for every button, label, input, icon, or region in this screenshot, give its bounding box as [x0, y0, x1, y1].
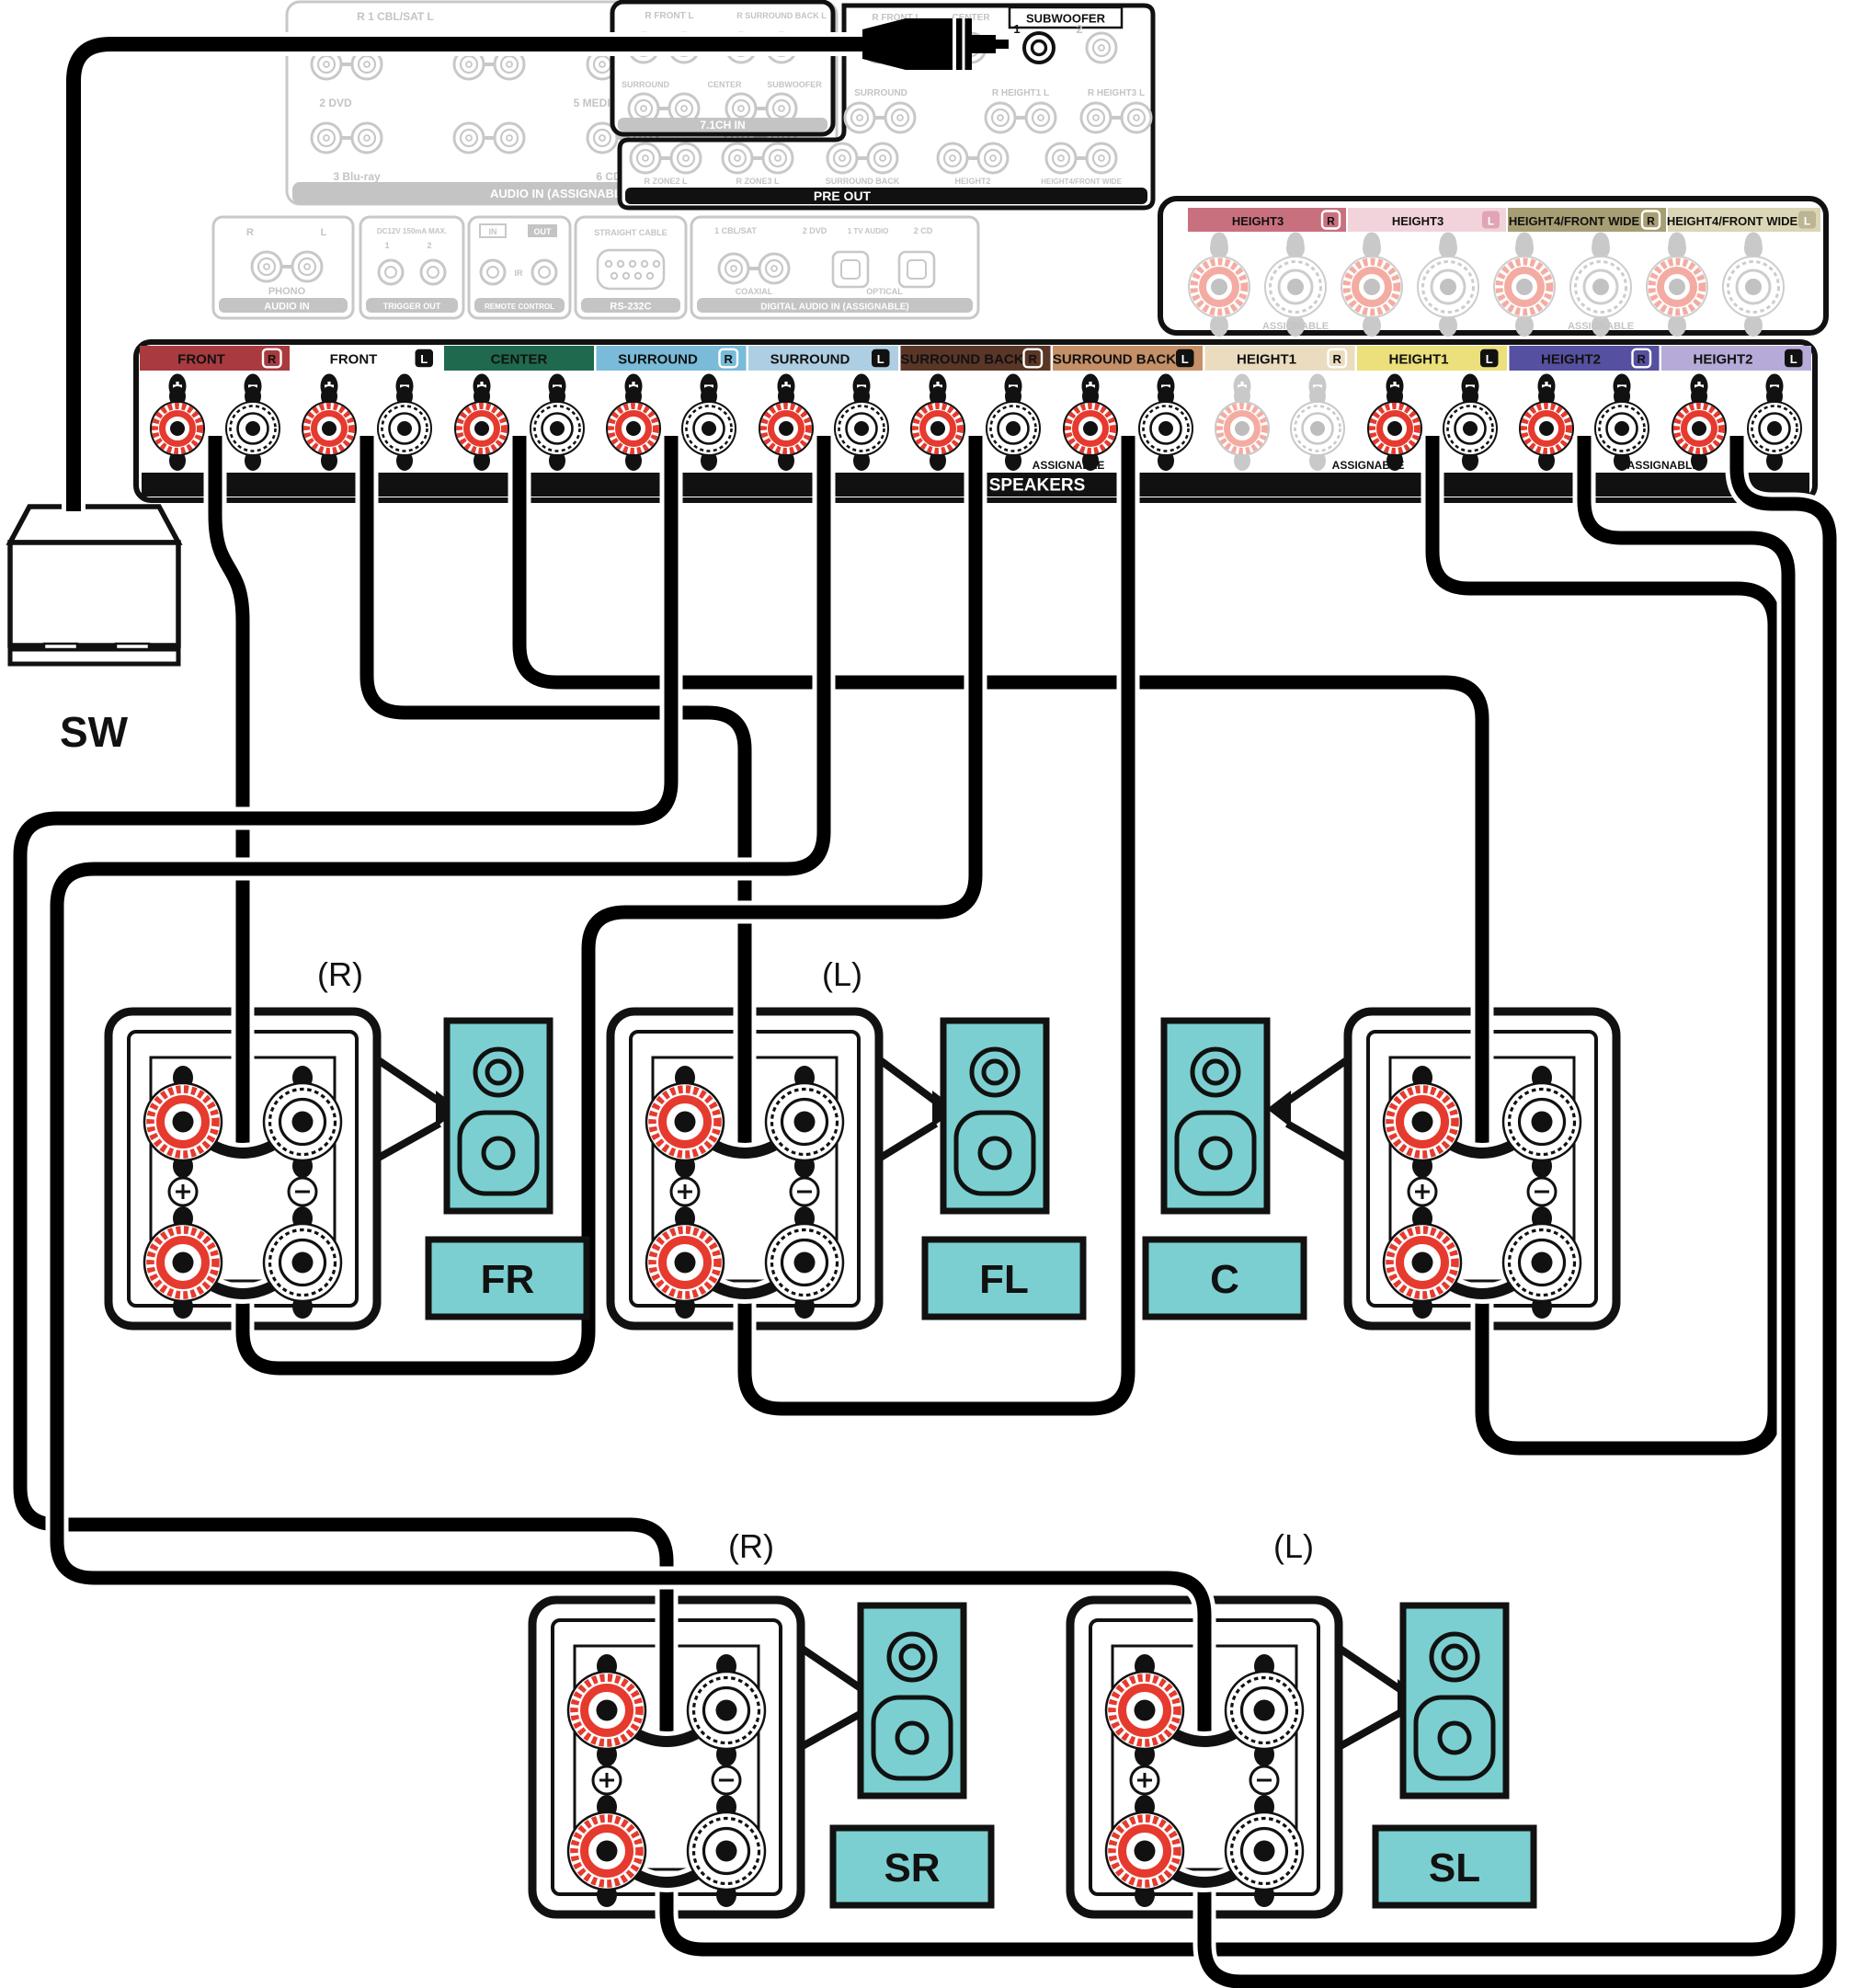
svg-text:L: L: [877, 352, 884, 366]
channel-label-height2-r: HEIGHT2 R: [1510, 346, 1660, 371]
svg-text:L: L: [420, 352, 428, 366]
input-label: 3 Blu-ray: [333, 170, 381, 183]
channel-label-height1-l: HEIGHT1 L: [1357, 346, 1507, 371]
input-label: 2 DVD: [319, 97, 352, 109]
channel-label-surround-l: SURROUND L: [748, 346, 898, 371]
channel-label-surround-back-r: SURROUND BACK R: [900, 346, 1050, 371]
audio-group-label: R 1 CBL/SAT L: [357, 10, 434, 23]
height34-header: HEIGHT4/FRONT WIDE L: [1667, 208, 1820, 232]
svg-text:L: L: [1486, 352, 1493, 366]
assignable-label: ASSIGNABLE: [1332, 459, 1405, 472]
remote-ir: IR: [515, 268, 524, 278]
speakers-bar-label: SPEAKERS: [989, 476, 1086, 496]
svg-text:HEIGHT2: HEIGHT2: [1693, 352, 1752, 368]
svg-text:L: L: [1790, 352, 1797, 366]
channel-label-front-l: FRONT L: [292, 346, 442, 371]
height34-header: HEIGHT3 R: [1188, 208, 1346, 232]
ch71-label: SURROUND: [622, 80, 670, 89]
ch71-label: CENTER: [707, 80, 742, 89]
c-speaker-icon: [1164, 1021, 1267, 1211]
rs232-top: STRAIGHT CABLE: [594, 228, 668, 237]
fr-label: FR: [481, 1257, 535, 1302]
fl-label: FL: [979, 1257, 1029, 1302]
trigger-bar: TRIGGER OUT: [383, 302, 441, 311]
phono-panel: R L PHONO AUDIO IN: [213, 217, 353, 318]
c-label: C: [1210, 1257, 1239, 1302]
svg-text:CENTER: CENTER: [491, 352, 548, 368]
ch71-bar-label: 7.1CH IN: [700, 119, 745, 131]
pre-out-bar-label: PRE OUT: [814, 189, 872, 203]
ch71-group-label: R FRONT L: [645, 11, 693, 21]
rs232-bar: RS-232C: [610, 302, 651, 313]
callout: [801, 1648, 863, 1747]
channel-label-center: CENTER: [444, 346, 594, 371]
fr-side-label: (R): [317, 955, 363, 993]
assignable-label: ASSIGNABLE: [1033, 459, 1105, 472]
subwoofer-label: SUBWOOFER: [1026, 12, 1106, 26]
svg-text:R: R: [1333, 352, 1342, 366]
sl-label: SL: [1429, 1845, 1480, 1891]
preout-label: R HEIGHT3 L: [1088, 88, 1145, 98]
optical-label: OPTICAL: [866, 287, 903, 296]
channel-label-height1-r: HEIGHT1 R: [1205, 346, 1355, 371]
trigger-1: 1: [384, 241, 389, 250]
assignable-label: ASSIGNABLE: [1262, 321, 1329, 332]
io-panel-row: R L PHONO AUDIO IN DC12V 150mA MAX. 1 2 …: [213, 217, 978, 318]
svg-text:R: R: [1637, 352, 1647, 366]
svg-text:HEIGHT4/FRONT WIDE: HEIGHT4/FRONT WIDE: [1509, 214, 1640, 228]
svg-text:L: L: [1804, 215, 1810, 228]
subwoofer-jack1-number: 1: [1013, 22, 1020, 36]
assignable-label: ASSIGNABLE: [1568, 321, 1634, 332]
audio-bar-label: AUDIO IN (ASSIGNABLE): [490, 187, 633, 200]
svg-text:SURROUND BACK: SURROUND BACK: [1053, 352, 1176, 368]
sr-side-label: (R): [728, 1527, 774, 1565]
height3-height4-terminals: HEIGHT3 R HEIGHT3 L HEIGHT4/FRONT WIDE R…: [1160, 199, 1826, 337]
sr-speaker-icon: [861, 1605, 964, 1796]
svg-text:HEIGHT1: HEIGHT1: [1237, 352, 1296, 368]
height34-header: HEIGHT3 L: [1348, 208, 1506, 232]
remote-bar: REMOTE CONTROL: [485, 303, 554, 311]
digital-label: 2 CD: [914, 226, 933, 235]
fl-side-label: (L): [822, 955, 862, 993]
channel-label-front-r: FRONT R: [140, 346, 290, 371]
phono-bar: AUDIO IN: [264, 302, 310, 313]
channel-label-height2-l: HEIGHT2 L: [1661, 346, 1811, 371]
receiver-rear-panel: R 1 CBL/SAT L R 4 GAME L 2 DVD 5 MEDIA P…: [136, 2, 1826, 500]
digital-label: 2 DVD: [803, 226, 827, 235]
svg-text:HEIGHT3: HEIGHT3: [1232, 214, 1284, 228]
svg-text:FRONT: FRONT: [330, 352, 378, 368]
fl-speaker-icon: [943, 1021, 1046, 1211]
height34-header: HEIGHT4/FRONT WIDE R: [1508, 208, 1666, 232]
svg-text:L: L: [1181, 352, 1189, 366]
sl-speaker-icon: [1403, 1605, 1506, 1796]
svg-text:L: L: [1488, 215, 1494, 228]
svg-text:SURROUND: SURROUND: [770, 352, 850, 368]
preout-label: R ZONE2 L: [644, 177, 688, 186]
svg-text:HEIGHT3: HEIGHT3: [1392, 214, 1443, 228]
ch71-label: SUBWOOFER: [767, 80, 822, 89]
subwoofer-label: SW: [60, 708, 129, 756]
phono-r: R: [246, 227, 254, 238]
rs232c-panel: STRAIGHT CABLE RS-232C: [576, 217, 686, 318]
channel-label-surround-r: SURROUND R: [597, 346, 747, 371]
preout-label: SURROUND: [854, 88, 907, 98]
svg-text:HEIGHT4/FRONT WIDE: HEIGHT4/FRONT WIDE: [1667, 214, 1798, 228]
71ch-in-panel: R FRONT L R SURROUND BACK L SURROUND CEN…: [612, 2, 833, 134]
callout: [377, 1059, 439, 1159]
coaxial-label: COAXIAL: [736, 287, 773, 296]
svg-text:R: R: [1029, 352, 1038, 366]
callout: [1339, 1648, 1401, 1747]
remote-in: IN: [489, 227, 497, 236]
svg-text:R: R: [1327, 215, 1335, 228]
sr-label: SR: [884, 1845, 940, 1891]
svg-text:FRONT: FRONT: [177, 352, 225, 368]
speaker-c: C: [1146, 1021, 1348, 1317]
preout-label: SURROUND BACK: [826, 177, 900, 186]
digital-bar: DIGITAL AUDIO IN (ASSIGNABLE): [760, 303, 908, 313]
callout-tip: [1267, 1091, 1291, 1127]
sl-side-label: (L): [1273, 1527, 1314, 1565]
digital-label: 1 TV AUDIO: [848, 227, 889, 235]
preout-label: HEIGHT2: [954, 177, 990, 186]
callout: [1287, 1059, 1348, 1159]
digital-audio-panel: 1 CBL/SAT 2 DVD 1 TV AUDIO 2 CD COAXIAL …: [691, 217, 978, 318]
subwoofer-pre-out-jack: [1024, 33, 1054, 63]
svg-text:R: R: [1647, 215, 1655, 228]
svg-text:SURROUND BACK: SURROUND BACK: [900, 352, 1023, 368]
svg-text:HEIGHT2: HEIGHT2: [1541, 352, 1601, 368]
callout: [879, 1059, 936, 1159]
speaker-connection-diagram: R 1 CBL/SAT L R 4 GAME L 2 DVD 5 MEDIA P…: [0, 0, 1860, 1988]
trigger-2: 2: [427, 241, 431, 250]
trigger-top: DC12V 150mA MAX.: [377, 227, 447, 235]
preout-label: R ZONE3 L: [736, 177, 780, 186]
phono-label: PHONO: [268, 286, 306, 297]
trigger-out-panel: DC12V 150mA MAX. 1 2 TRIGGER OUT: [360, 217, 463, 318]
ch71-group-label: R SURROUND BACK L: [736, 11, 827, 20]
svg-text:R: R: [268, 352, 277, 366]
channel-label-surround-back-l: SURROUND BACK L: [1053, 346, 1203, 371]
subwoofer-speaker: SW: [10, 507, 178, 756]
svg-text:R: R: [725, 352, 734, 366]
phono-l: L: [321, 227, 327, 238]
fr-speaker-icon: [447, 1021, 550, 1211]
digital-label: 1 CBL/SAT: [714, 226, 757, 235]
assignable-label: ASSIGNABLE: [1627, 459, 1700, 472]
remote-out: OUT: [534, 227, 553, 236]
remote-control-panel: IN OUT IR REMOTE CONTROL: [469, 217, 570, 318]
svg-text:HEIGHT1: HEIGHT1: [1388, 352, 1448, 368]
preout-label: HEIGHT4/FRONT WIDE: [1041, 177, 1122, 186]
svg-text:SURROUND: SURROUND: [618, 352, 698, 368]
preout-label: R HEIGHT1 L: [992, 88, 1049, 98]
subwoofer-jack2-number: 2: [1076, 22, 1082, 36]
